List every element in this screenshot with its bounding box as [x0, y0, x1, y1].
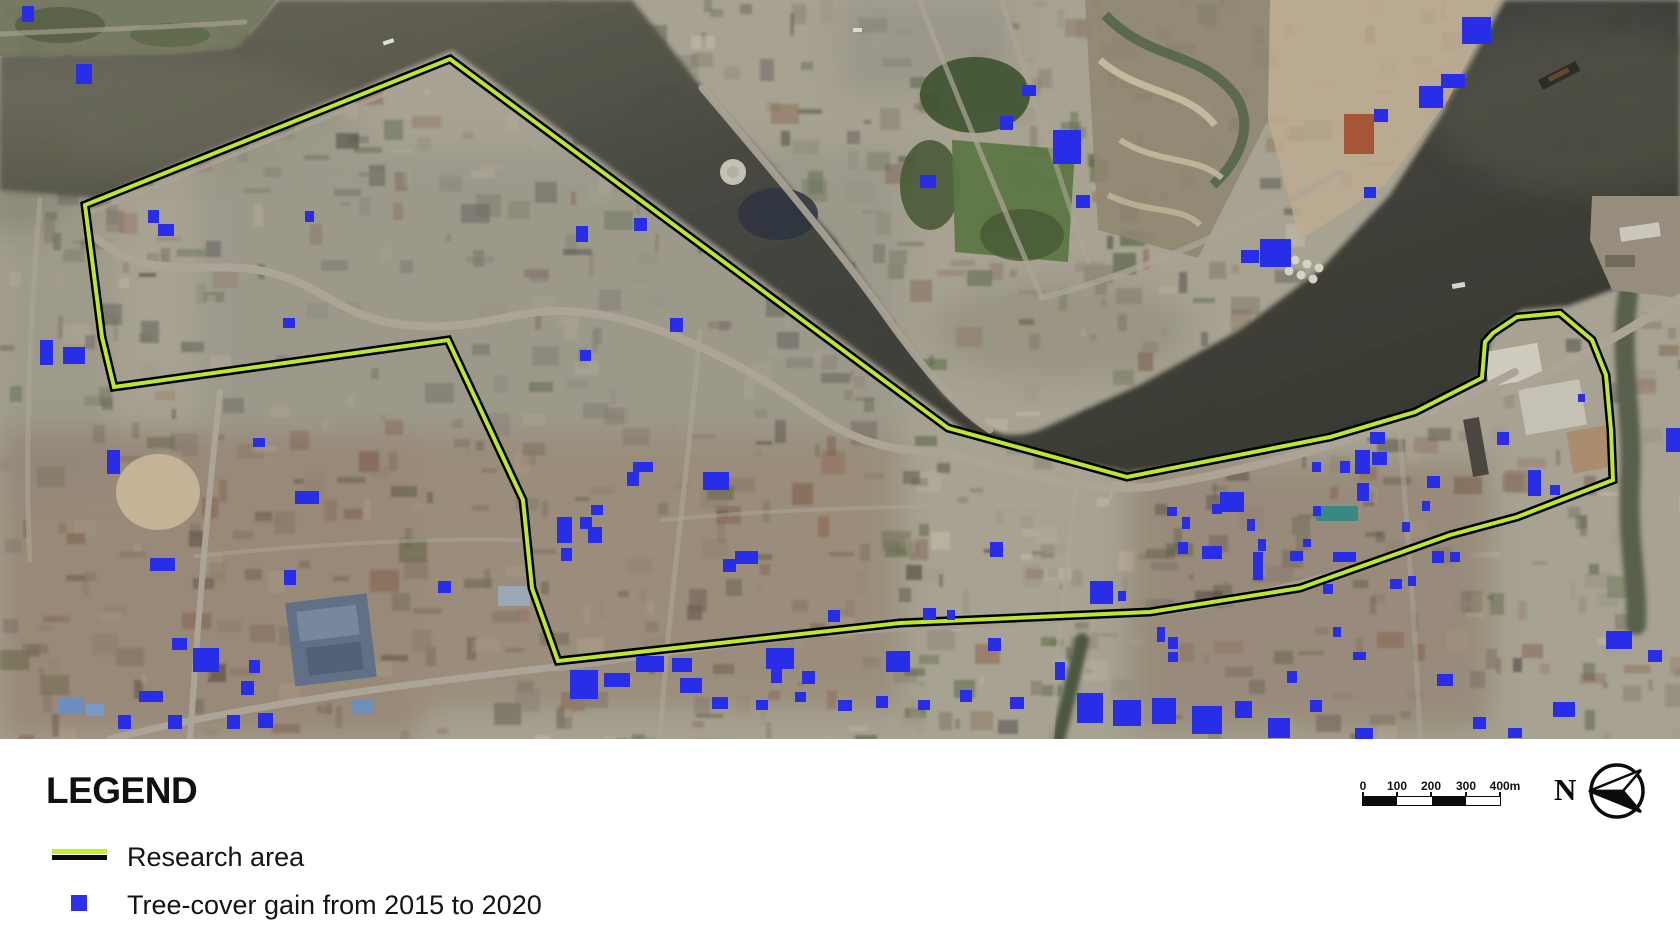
scale-label-100: 100 [1387, 779, 1407, 793]
scale-bar: 0 100 200 300 400m [1356, 779, 1526, 809]
scale-label-200: 200 [1421, 779, 1441, 793]
satellite-map [0, 0, 1680, 739]
tree-cover-gain-swatch [71, 895, 87, 911]
legend-item-tree-cover-gain: Tree-cover gain from 2015 to 2020 [0, 888, 700, 922]
scale-bar-segments [1362, 796, 1501, 806]
scale-segment-black [1432, 797, 1466, 805]
legend-item-research-area: Research area [0, 840, 600, 874]
research-area-line-swatch [52, 849, 107, 861]
research-area-green-line [52, 849, 107, 854]
research-area-black-line [52, 855, 107, 860]
scale-segment-white [1466, 797, 1500, 805]
figure-page: LEGEND Research area Tree-cover gain fro… [0, 0, 1680, 930]
scale-label-0: 0 [1360, 779, 1367, 793]
north-arrow: N [1540, 756, 1662, 826]
map-contrast-overlay [0, 0, 1680, 739]
north-label: N [1554, 772, 1576, 808]
legend-title: LEGEND [46, 770, 197, 812]
satellite-map-image [0, 0, 1680, 739]
scale-segment-black [1363, 797, 1397, 805]
scale-label-300: 300 [1456, 779, 1476, 793]
legend-item-label: Tree-cover gain from 2015 to 2020 [127, 890, 542, 921]
scale-segment-white [1397, 797, 1431, 805]
legend-item-label: Research area [127, 842, 304, 873]
scale-label-400m: 400m [1490, 779, 1521, 793]
